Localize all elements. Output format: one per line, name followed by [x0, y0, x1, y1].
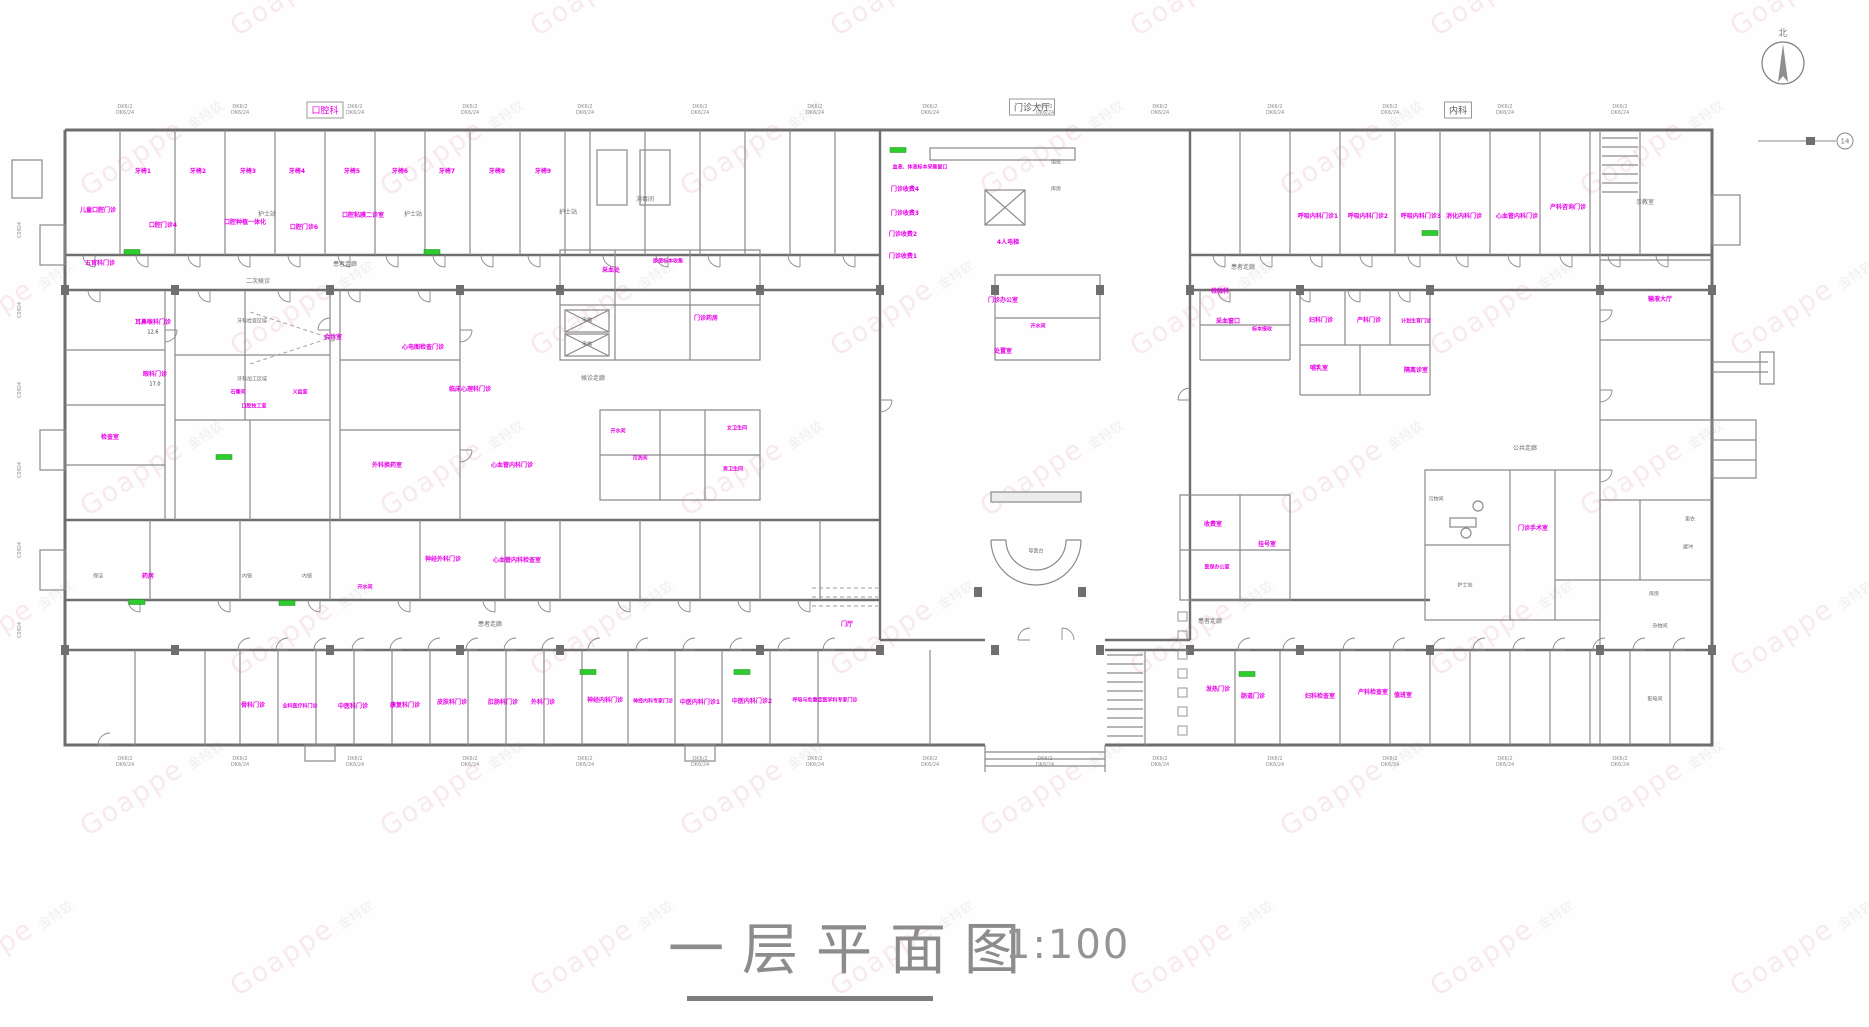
door-symbol: [738, 600, 750, 612]
room-label: 牙椅4: [289, 169, 305, 175]
door-symbol: [1600, 310, 1612, 322]
door-symbol: [433, 255, 445, 267]
room-label: 产科咨询门诊: [1550, 205, 1586, 211]
room-label: 呼吸与危重症医学科专家门诊: [792, 699, 857, 704]
door-symbol: [1343, 638, 1355, 650]
door-symbol: [1178, 388, 1190, 400]
dimension-tag: DK6/2DK6/24: [1496, 756, 1514, 768]
room-label: 门诊收费3: [891, 211, 919, 217]
colonnade-square: [1178, 726, 1187, 735]
door-symbol: [1310, 255, 1322, 267]
room-label: 检验科: [1211, 289, 1229, 295]
colonnade-square: [1178, 612, 1187, 621]
dimension-tag: DK6/2DK6/24: [1496, 104, 1514, 116]
room-label: 中医内科门诊1: [680, 700, 720, 706]
door-symbol: [788, 255, 800, 267]
column-pier: [456, 645, 464, 655]
room-label: 神经外科门诊: [425, 557, 461, 563]
room-label: 牙椅7: [439, 169, 455, 175]
room-label: 心血管内科检查室: [493, 558, 541, 564]
room-label: 妇科检查室: [1305, 694, 1335, 700]
dimension-tag: C0924: [17, 622, 23, 638]
dimension-tag: DK6/2DK6/24: [1381, 756, 1399, 768]
room-label: 耳鼻喉科门诊: [135, 320, 171, 326]
room-label: 血液、体液标本采集窗口: [892, 166, 947, 171]
door-symbol: [466, 638, 478, 650]
room-label: 库房: [1649, 593, 1659, 598]
room-label: 配电间: [1647, 698, 1662, 703]
dashed-lines: [250, 312, 878, 606]
column-pier: [876, 645, 884, 655]
room-label: 眼科门诊: [143, 372, 167, 378]
room-label: 牙椅1: [135, 169, 151, 175]
room-label: 开水间: [357, 586, 372, 591]
door-symbol: [88, 290, 100, 302]
dimension-tag: C0924: [17, 302, 23, 318]
door-symbol: [318, 318, 330, 330]
door-highlight: [124, 250, 140, 255]
door-symbol: [278, 290, 290, 302]
door-symbol: [588, 638, 600, 650]
dimension-tag: DK6/2DK6/24: [1266, 756, 1284, 768]
title-underline: [687, 996, 933, 1001]
door-symbol: [1238, 638, 1250, 650]
door-symbol: [1600, 390, 1612, 402]
room-label: 电梯: [582, 319, 592, 324]
grid-number-badge: 14: [1837, 133, 1854, 150]
door-symbol: [1348, 290, 1360, 302]
room-label: 牙椅8: [489, 169, 505, 175]
column-pier: [456, 285, 464, 295]
room-label: 检查室: [101, 435, 119, 441]
room-label: 会诊室: [324, 335, 342, 341]
column-pier: [1296, 645, 1304, 655]
dimension-tag: DK6/2DK6/24: [1151, 104, 1169, 116]
door-symbol: [538, 600, 550, 612]
door-symbol: [390, 638, 402, 650]
room-label: 呼吸内科门诊3: [1401, 214, 1441, 220]
room-label: 牙科检查区域: [237, 320, 267, 325]
dimension-tag: DK6/2DK6/24: [461, 756, 479, 768]
room-label: 骨科门诊: [241, 703, 265, 709]
door-highlight: [279, 601, 295, 606]
room-label: 患者走廊: [478, 622, 502, 628]
dimension-tag: DK6/2DK6/24: [576, 104, 594, 116]
room-label: 石膏间: [230, 391, 245, 396]
door-symbol: [352, 638, 364, 650]
colonnade-square: [1178, 669, 1187, 678]
room-label: 开水间: [1030, 325, 1045, 330]
colonnade-square: [1178, 650, 1187, 659]
door-symbol: [1600, 470, 1612, 482]
room-label: 计划生育门诊: [1401, 320, 1431, 325]
door-symbol: [308, 600, 320, 612]
room-label: 哺乳室: [1310, 366, 1328, 372]
door-symbol: [1513, 638, 1525, 650]
room-label: 消化内科门诊: [1446, 214, 1482, 220]
column-pier: [756, 645, 764, 655]
dimension-tag: DK6/2DK6/24: [346, 756, 364, 768]
door-highlight: [890, 148, 906, 153]
room-label: 呼吸内科门诊2: [1348, 214, 1388, 220]
door-symbol: [1018, 628, 1030, 640]
door-symbol: [276, 638, 288, 650]
room-label: 妇科门诊: [1309, 318, 1333, 324]
door-symbol: [683, 638, 695, 650]
column-pier: [1708, 645, 1716, 655]
door-symbol: [314, 638, 326, 650]
door-symbol: [481, 255, 493, 267]
room-label: 患者走廊: [333, 262, 357, 268]
room-label: 护士站: [559, 210, 577, 216]
room-label: 尿便标本收集: [653, 260, 683, 265]
section-label: 口腔科: [306, 102, 343, 119]
room-label: 神经内科门诊: [587, 698, 623, 704]
room-label: 库房: [1051, 188, 1061, 193]
door-symbol: [504, 638, 516, 650]
room-label: 五官科门诊: [85, 261, 115, 267]
dimension-tag: DK6/2DK6/24: [806, 756, 824, 768]
floor-plan-drawing: [0, 0, 1869, 1027]
door-symbol: [880, 400, 892, 412]
room-label: 男卫生间: [723, 468, 743, 473]
column-pier: [61, 285, 69, 295]
door-symbol: [398, 600, 410, 612]
room-label: 全科医疗科门诊: [282, 705, 317, 710]
dimension-tag: DK6/2DK6/24: [1036, 756, 1054, 768]
column-pier: [1186, 285, 1194, 295]
room-label: 污物间: [1428, 498, 1443, 503]
drawing-title: 一层平面图: [668, 905, 1038, 986]
room-label: 门诊收费2: [889, 232, 917, 238]
section-label: 内科: [1444, 102, 1472, 119]
partition-walls: [12, 130, 1774, 772]
door-symbol: [843, 255, 855, 267]
dimension-tag: DK6/2DK6/24: [691, 756, 709, 768]
room-label: 杂物间: [1652, 625, 1667, 630]
dimension-tag: DK6/2DK6/24: [921, 756, 939, 768]
column-pier: [171, 645, 179, 655]
door-symbol: [1560, 255, 1572, 267]
door-symbol: [730, 638, 742, 650]
dimension-tag: DK6/2DK6/24: [576, 756, 594, 768]
column-pier: [1426, 285, 1434, 295]
room-label: 临床心理科门诊: [449, 387, 491, 393]
door-symbol: [1473, 638, 1485, 650]
door-symbol: [483, 600, 495, 612]
door-symbol: [386, 255, 398, 267]
room-label: 处置室: [994, 349, 1012, 355]
door-symbol: [708, 255, 720, 267]
room-label: 皮肤科门诊: [437, 700, 467, 706]
room-label: 公共走廊: [1513, 446, 1537, 452]
door-symbol: [1393, 638, 1405, 650]
door-symbol: [428, 638, 440, 650]
room-label: 牙椅2: [190, 169, 206, 175]
colonnade-square: [1178, 688, 1187, 697]
dimension-tag: DK6/2DK6/24: [116, 756, 134, 768]
door-symbol: [528, 255, 540, 267]
room-label: 义齿室: [292, 391, 307, 396]
door-symbol: [288, 255, 300, 267]
door-symbol: [798, 600, 810, 612]
room-label: 患者走廊: [1231, 265, 1255, 271]
column-pier: [1708, 285, 1716, 295]
door-symbol: [1433, 638, 1445, 650]
column-pier: [61, 645, 69, 655]
column-pier: [171, 285, 179, 295]
door-symbol: [1283, 638, 1295, 650]
room-label: 康复科门诊: [390, 703, 420, 709]
room-label: 收费室: [1204, 522, 1222, 528]
dimension-tag: DK6/2DK6/24: [1266, 104, 1284, 116]
door-highlight: [129, 600, 145, 605]
room-label: 消毒间: [636, 197, 654, 203]
door-symbol: [1508, 255, 1520, 267]
room-label: 口腔门诊6: [290, 225, 318, 231]
room-label: 护士站: [1457, 584, 1472, 589]
room-label: 污洗间: [632, 457, 647, 462]
column-pier: [556, 285, 564, 295]
room-label: 门诊药房: [694, 316, 718, 322]
door-symbol: [1213, 255, 1225, 267]
room-label: 药房: [142, 574, 154, 580]
room-label: 保洁: [93, 575, 103, 580]
door-symbol: [1673, 638, 1685, 650]
room-label: 女卫生间: [727, 427, 747, 432]
room-label: 神经内科专家门诊: [633, 700, 673, 705]
main-walls: [65, 130, 1712, 650]
drawing-scale: 1:100: [1005, 922, 1130, 968]
room-label: 牙椅6: [392, 169, 408, 175]
door-symbol: [823, 638, 835, 650]
dimension-tag: DK6/2DK6/24: [1611, 104, 1629, 116]
door-symbol: [1608, 255, 1620, 267]
door-symbol: [1633, 638, 1645, 650]
room-label: 发热门诊: [1206, 687, 1230, 693]
room-label: 儿童口腔门诊: [80, 208, 116, 214]
dimension-tag: DK6/2DK6/24: [921, 104, 939, 116]
room-label: 采血处: [602, 268, 620, 274]
room-label: 值班: [1051, 161, 1061, 166]
column-pier: [1096, 645, 1104, 655]
room-label: 4人电梯: [997, 240, 1019, 246]
door-symbol: [198, 290, 210, 302]
room-label: 口腔种植一体化: [224, 220, 266, 226]
door-symbol: [1260, 255, 1272, 267]
dimension-tag: C0924: [17, 542, 23, 558]
room-label: 产科检查室: [1358, 690, 1388, 696]
room-label: 示教室: [1636, 200, 1654, 206]
door-symbol: [778, 638, 790, 650]
room-label: 外科换药室: [372, 463, 402, 469]
colonnade-square: [1178, 707, 1187, 716]
room-label: 门诊收费1: [889, 254, 917, 260]
room-label: 电梯: [582, 343, 592, 348]
room-label: 呼吸内科门诊1: [1298, 214, 1338, 220]
column-pier: [1426, 645, 1434, 655]
north-label: 北: [1778, 26, 1787, 39]
door-symbol: [618, 600, 630, 612]
room-label: 心血管内科门诊: [1496, 214, 1538, 220]
door-symbol: [603, 255, 615, 267]
dimension-tag: DK6/2DK6/24: [1036, 104, 1054, 116]
room-label: 更衣: [1685, 518, 1695, 523]
room-label: 患者走廊: [1198, 619, 1222, 625]
door-highlight: [216, 455, 232, 460]
grid-line-marker: [1758, 137, 1836, 145]
door-symbol: [1553, 638, 1565, 650]
room-label: 肠道门诊: [1241, 694, 1265, 700]
room-label: 中医科门诊: [338, 704, 368, 710]
door-symbol: [418, 290, 430, 302]
door-highlight: [580, 670, 596, 675]
column-pier: [1096, 285, 1104, 295]
room-label: 心电图检查门诊: [402, 345, 444, 351]
room-label: 口腔技工室: [241, 405, 266, 410]
room-label: 内镜: [242, 575, 252, 580]
column-pier: [1596, 645, 1604, 655]
room-label: 心血管内科门诊: [491, 463, 533, 469]
door-symbol: [1456, 255, 1468, 267]
dimension-tag: C0924: [17, 382, 23, 398]
room-label: 口腔门诊4: [149, 223, 177, 229]
door-highlight: [734, 670, 750, 675]
dimension-tag: DK6/2DK6/24: [116, 104, 134, 116]
room-label: 医保办公室: [1204, 566, 1229, 571]
outer-walls: [65, 130, 1712, 745]
dimension-tag: C0924: [17, 222, 23, 238]
column-pier: [974, 587, 982, 597]
room-label: 中医内科门诊2: [732, 699, 772, 705]
room-label: 内镜: [302, 575, 312, 580]
column-pier: [326, 645, 334, 655]
room-label: 12.6: [147, 331, 158, 336]
dimension-tag: DK6/2DK6/24: [1381, 104, 1399, 116]
door-symbol: [460, 450, 472, 462]
column-pier: [1296, 285, 1304, 295]
door-symbol: [98, 733, 110, 745]
room-label: 牙椅9: [535, 169, 551, 175]
room-label: 标本接收: [1252, 328, 1272, 333]
door-symbol: [1408, 255, 1420, 267]
colonnade-square: [1178, 631, 1187, 640]
door-symbol: [636, 638, 648, 650]
dimension-tag: C0924: [17, 462, 23, 478]
column-pier: [876, 285, 884, 295]
dimension-tag: DK6/2DK6/24: [1611, 756, 1629, 768]
door-symbol: [1062, 628, 1074, 640]
room-label: 牙科加工区域: [237, 378, 267, 383]
room-label: 隔离诊室: [1404, 368, 1428, 374]
floor-plan-canvas: Goappe金特软Goappe金特软Goappe金特软Goappe金特软Goap…: [0, 0, 1869, 1027]
north-compass-icon: [1762, 42, 1804, 84]
room-label: 护士站: [258, 212, 276, 218]
door-symbol: [1398, 290, 1410, 302]
column-pier: [556, 645, 564, 655]
room-label: 门诊办公室: [988, 298, 1018, 304]
column-pier: [1596, 285, 1604, 295]
door-symbol: [136, 255, 148, 267]
room-label: 牙椅5: [344, 169, 360, 175]
room-label: 值班室: [1394, 693, 1412, 699]
room-label: 导医台: [1028, 550, 1043, 555]
door-symbol: [188, 255, 200, 267]
column-pier: [991, 645, 999, 655]
door-symbol: [460, 330, 472, 342]
room-label: 门诊手术室: [1518, 526, 1548, 532]
room-label: 肛肠科门诊: [488, 700, 518, 706]
door-highlight: [1422, 231, 1438, 236]
room-label: 17.0: [149, 383, 160, 388]
room-label: 外科门诊: [531, 700, 555, 706]
room-label: 牙椅3: [240, 169, 256, 175]
column-pier: [756, 285, 764, 295]
door-symbol: [1360, 255, 1372, 267]
door-highlight: [1239, 672, 1255, 677]
room-label: 候诊走廊: [581, 376, 605, 382]
room-label: 护士站: [404, 212, 422, 218]
room-label: 缓冲: [1683, 546, 1693, 551]
door-symbol: [1656, 255, 1668, 267]
room-label: 采血窗口: [1216, 319, 1240, 325]
door-symbol: [542, 638, 554, 650]
dimension-tag: DK6/2DK6/24: [806, 104, 824, 116]
column-pier: [326, 285, 334, 295]
room-label: 产科门诊: [1357, 318, 1381, 324]
column-pier: [991, 285, 999, 295]
room-label: 挂号室: [1258, 542, 1276, 548]
door-symbol: [238, 255, 250, 267]
door-symbol: [678, 600, 690, 612]
room-label: 二次候诊: [246, 279, 270, 285]
dimension-tag: DK6/2DK6/24: [346, 104, 364, 116]
room-label: 输液大厅: [1648, 297, 1672, 303]
room-label: 开水间: [610, 430, 625, 435]
dimension-tag: DK6/2DK6/24: [231, 756, 249, 768]
column-pier: [1078, 587, 1086, 597]
room-label: 门厅: [841, 622, 853, 628]
dimension-tag: DK6/2DK6/24: [1151, 756, 1169, 768]
room-label: 口腔粘膜二诊室: [342, 213, 384, 219]
dimension-tag: DK6/2DK6/24: [231, 104, 249, 116]
door-symbol: [348, 290, 360, 302]
door-symbol: [218, 600, 230, 612]
dimension-tag: DK6/2DK6/24: [461, 104, 479, 116]
room-label: 门诊收费4: [891, 187, 919, 193]
door-highlight: [424, 250, 440, 255]
dimension-tag: DK6/2DK6/24: [691, 104, 709, 116]
door-symbol: [238, 638, 250, 650]
